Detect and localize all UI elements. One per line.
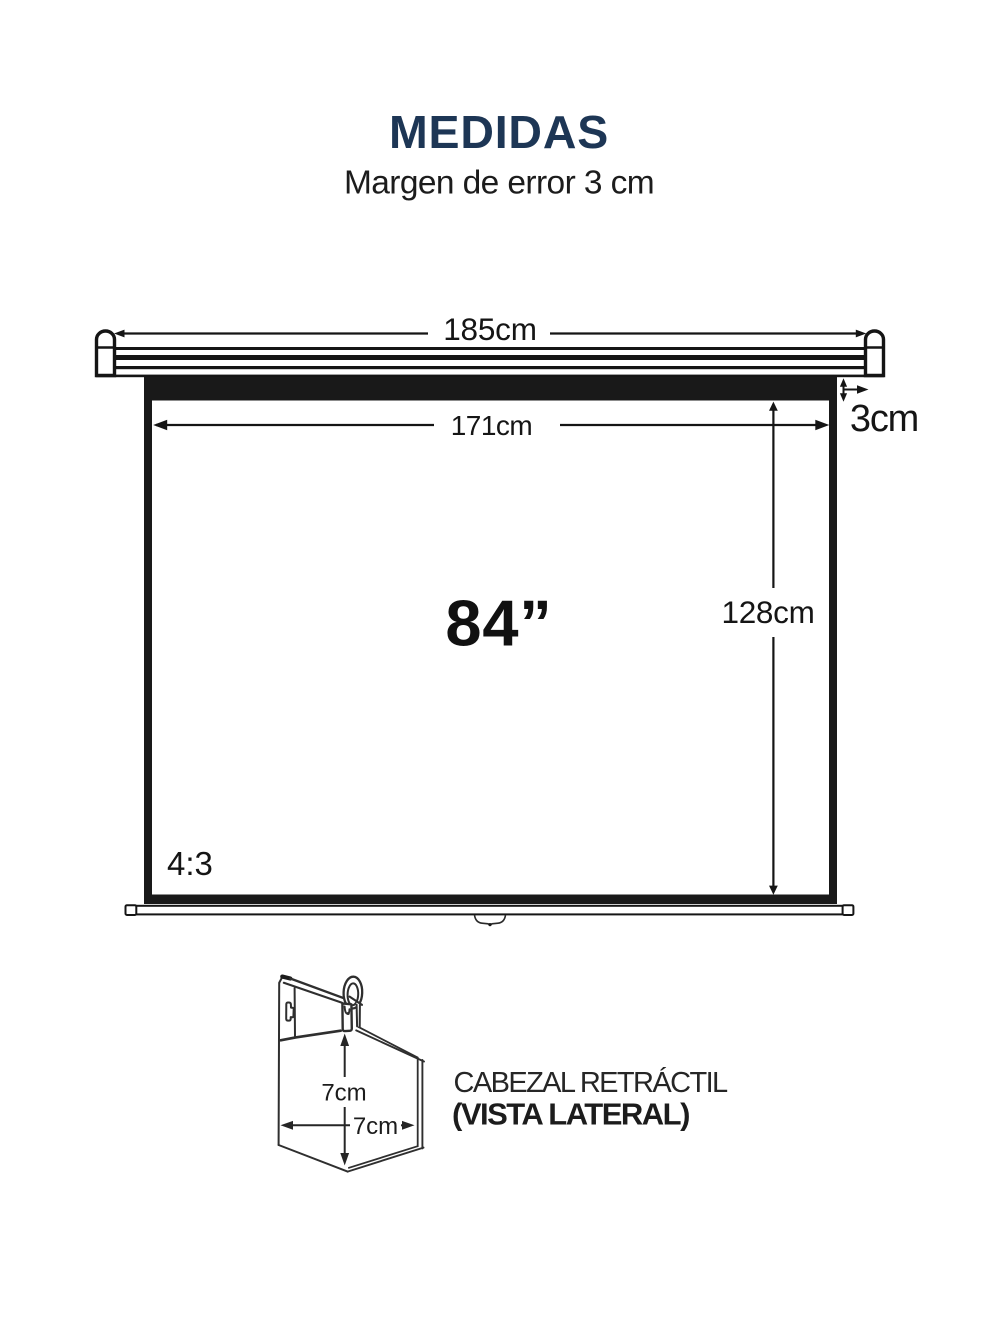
svg-text:MEDIDAS: MEDIDAS — [389, 106, 609, 158]
svg-text:3cm: 3cm — [850, 398, 918, 440]
svg-text:7cm: 7cm — [353, 1113, 398, 1140]
svg-text:84”: 84” — [445, 587, 552, 660]
svg-text:4:3: 4:3 — [167, 845, 213, 882]
svg-text:(VISTA LATERAL): (VISTA LATERAL) — [452, 1097, 689, 1132]
svg-text:185cm: 185cm — [443, 311, 537, 347]
svg-text:Margen de error 3 cm: Margen de error 3 cm — [344, 165, 654, 202]
svg-text:CABEZAL RETRÁCTIL: CABEZAL RETRÁCTIL — [454, 1066, 729, 1099]
svg-text:7cm: 7cm — [321, 1080, 366, 1107]
svg-text:128cm: 128cm — [721, 594, 814, 630]
svg-text:171cm: 171cm — [451, 410, 533, 441]
